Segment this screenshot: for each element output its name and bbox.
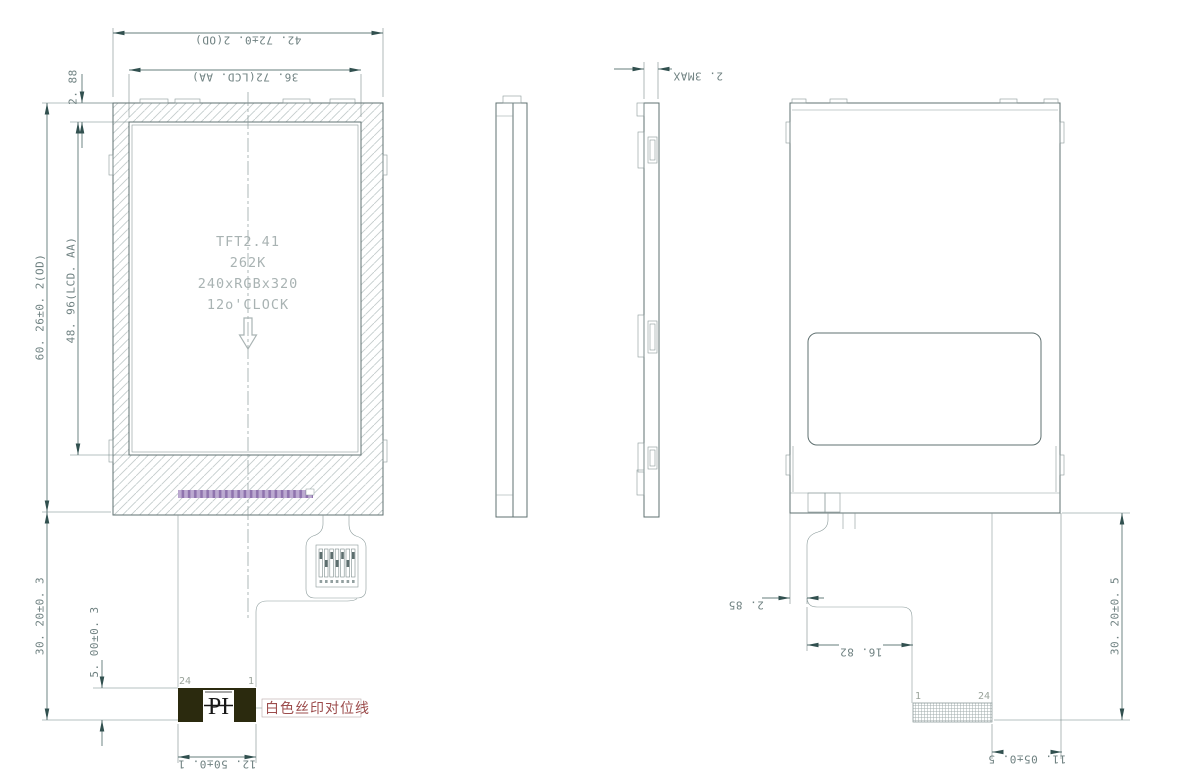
dim-connector-offset: 11. 05±0. 5	[988, 753, 1066, 766]
lcd-mechanical-drawing: TFT2.41 262K 240xRGBx320 12o'CLOCK	[0, 0, 1180, 783]
dim-connector-width: 12. 50±0. 1	[178, 758, 256, 771]
back-pin-label-24: 24	[978, 691, 990, 702]
front-view: TFT2.41 262K 240xRGBx320 12o'CLOCK	[34, 28, 388, 771]
back-inner-window	[808, 333, 1041, 445]
dim-fpc-step: 16. 82	[840, 646, 883, 659]
dim-top-margin: 2. 88	[67, 69, 80, 105]
pin-label-24: 24	[179, 676, 191, 687]
panel-label-line3: 240xRGBx320	[198, 276, 298, 292]
panel-label-line1: TFT2.41	[216, 234, 280, 250]
dim-aa-height: 48. 96(LCD. AA)	[65, 237, 78, 344]
back-connector: 1 24	[913, 691, 992, 722]
dim-od-width: 42. 72±0. 2(OD)	[195, 34, 302, 47]
panel-label-line4: 12o'CLOCK	[207, 297, 289, 313]
fpc-connector-front: 24 1 PI 白色丝印对位线	[178, 676, 370, 722]
driver-ic-strip	[178, 489, 314, 498]
back-bottom-steps	[790, 446, 1060, 512]
dim-aa-width: 36. 72(LCD. AA)	[192, 71, 299, 84]
dim-fpc-drop-front: 30. 20±0. 3	[34, 577, 47, 655]
pin-label-1: 1	[248, 676, 254, 687]
dim-fpc-drop-back: 30. 20±0. 5	[1109, 577, 1122, 655]
side2-clips	[638, 132, 657, 472]
side-view-right: 2. 3MAX	[614, 62, 723, 517]
fpc-ic-footprint	[316, 545, 358, 587]
back-dimensions: 2. 85 16. 82 30. 20±0. 5 11. 05±0. 5	[728, 513, 1130, 766]
dim-thickness: 2. 3MAX	[673, 70, 723, 83]
side-view-left	[496, 96, 527, 517]
panel-label-line2: 262K	[230, 255, 267, 271]
drawing-canvas: TFT2.41 262K 240xRGBx320 12o'CLOCK	[0, 0, 1180, 783]
back-fpc-outline	[807, 513, 992, 703]
side1-top-tab	[503, 96, 521, 103]
silkscreen-note: 白色丝印对位线	[265, 700, 370, 717]
back-top-tabs	[786, 99, 1064, 475]
front-dimensions: 42. 72±0. 2(OD) 36. 72(LCD. AA) 2. 88 60…	[34, 28, 384, 771]
dim-pi-height: 5. 00±0. 3	[88, 606, 101, 677]
side2-dimension: 2. 3MAX	[614, 62, 723, 99]
front-fpc-outline	[178, 515, 366, 687]
dim-od-height: 60. 26±0. 2(OD)	[34, 254, 47, 361]
back-view: 1 24 2. 85 16. 82 30. 20±0. 5 11. 05±0. …	[728, 99, 1130, 766]
pi-mark: PI	[208, 694, 229, 720]
dim-fpc-offset: 2. 85	[728, 599, 764, 612]
back-pin-label-1: 1	[915, 691, 921, 702]
